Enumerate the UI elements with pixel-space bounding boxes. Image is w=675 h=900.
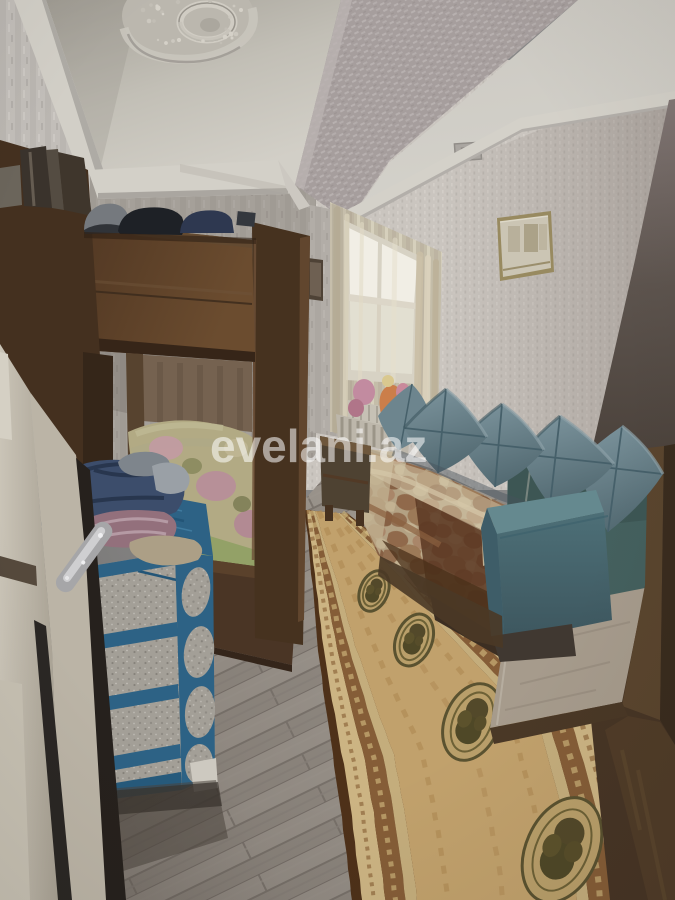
- svg-text:evelani.az: evelani.az: [210, 420, 427, 472]
